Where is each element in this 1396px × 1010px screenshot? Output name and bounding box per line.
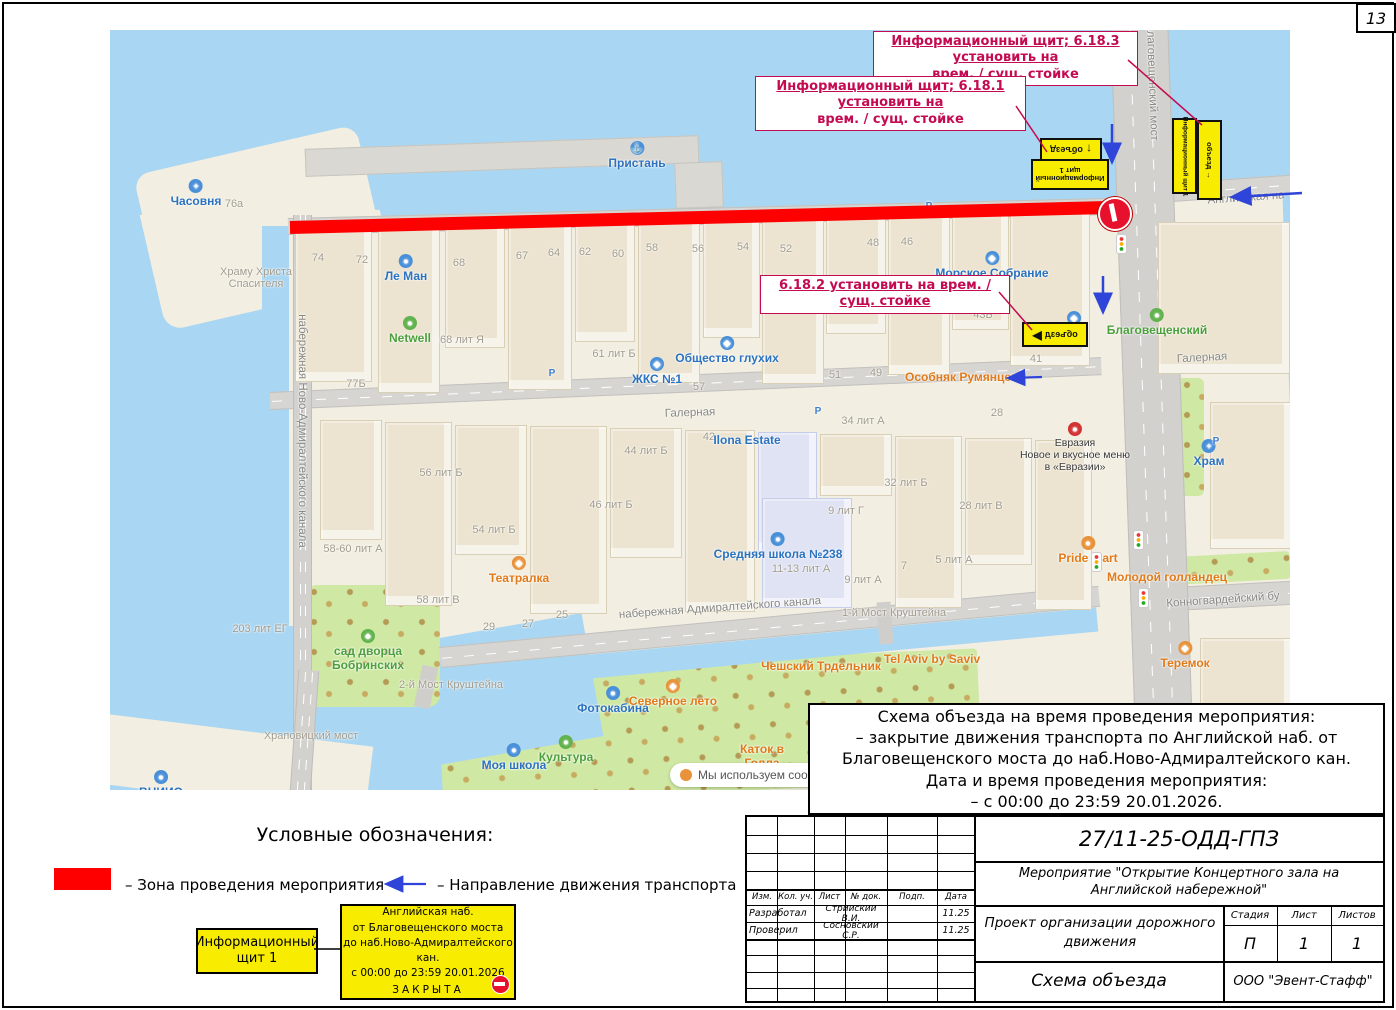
map-label: 48	[867, 237, 879, 249]
map-label: 56	[692, 243, 704, 255]
building	[703, 216, 760, 338]
map-label: 67	[516, 250, 528, 262]
tree-icon: ♣	[361, 629, 375, 643]
chapel-icon: +	[189, 179, 203, 193]
map-label: 34 лит А	[841, 415, 884, 427]
detour-sign-text: объезд	[1050, 145, 1083, 154]
tb-sheets-label: Листов	[1331, 905, 1383, 925]
map-label: Храму ХристаСпасителя	[220, 266, 292, 290]
building	[685, 430, 755, 612]
building	[320, 420, 382, 540]
detour-sign-3: ◀ объезд	[1022, 322, 1088, 347]
poi-icon: ◆	[720, 336, 734, 350]
school-icon: ●	[507, 743, 521, 757]
map-label: 60	[612, 248, 624, 260]
map-label: 72	[356, 254, 368, 266]
tb-sheet-value: 1	[1277, 925, 1331, 961]
arrow-left-icon: ◀	[1033, 329, 1042, 341]
info-board-sign-text: Информационный щит 1	[1033, 167, 1107, 183]
tb-col-ndok: № док.	[845, 889, 887, 905]
map-label: Tel Aviv by Saviv	[884, 652, 980, 666]
poi-icon: ◆	[985, 251, 999, 265]
no-entry-sign	[1098, 197, 1132, 231]
callout-6-18-1: Информационный щит; 6.18.1 установить на…	[755, 76, 1026, 131]
tb-role-2: Проверил	[749, 922, 814, 939]
tb-date-1: 11.25	[937, 905, 975, 922]
callout-6-18-2: 6.18.2 установить на врем. / сущ. стойке	[760, 275, 1010, 314]
map-label: 46 лит Б	[589, 499, 632, 511]
scheme-description: Схема объезда на время проведения меропр…	[808, 703, 1385, 815]
map-label: 32 лит Б	[884, 477, 927, 489]
map-label: 57	[693, 381, 705, 393]
description-lines: Схема объезда на время проведения меропр…	[810, 706, 1383, 812]
info-board-label-line: щит 1	[237, 951, 278, 967]
ad-icon: ●	[1068, 422, 1082, 436]
building	[826, 212, 886, 334]
detour-sign-text: объезд	[1045, 330, 1078, 339]
traffic-light-icon	[1116, 234, 1127, 254]
map-label: 28 лит В	[959, 500, 1002, 512]
traffic-light-icon	[1138, 588, 1149, 608]
info-board-sign-2: Информационный щит 1	[1172, 118, 1197, 194]
camera-icon: ●	[606, 686, 620, 700]
building	[445, 226, 505, 348]
map-label: 46	[901, 236, 913, 248]
map-label: ●Средняя школа №238	[714, 531, 843, 561]
tb-col-podp: Подп.	[887, 889, 937, 905]
map-label: ⚓Пристань	[608, 140, 665, 170]
map-label: ●Моя школа	[482, 742, 547, 772]
map-label: 77Б	[346, 378, 365, 390]
no-entry-icon	[491, 975, 510, 994]
tb-date-2: 11.25	[937, 922, 975, 939]
callout-line: Информационный щит; 6.18.3 установить на	[878, 34, 1133, 67]
map-label: 68	[453, 257, 465, 269]
map-label: ◆Театралка	[489, 555, 549, 585]
tb-col-data: Дата	[937, 889, 975, 905]
poi-icon: ◆	[512, 556, 526, 570]
info-board-content: Английская наб.от Благовещенского мостад…	[340, 904, 516, 1000]
landmark-icon: ●	[1150, 308, 1164, 322]
poi-icon: ◆	[650, 357, 664, 371]
tb-col-list: Лист	[814, 889, 845, 905]
tb-col-izm: Изм.	[747, 889, 777, 905]
map-label: +Храм	[1194, 438, 1225, 468]
tb-company: ООО "Эвент-Стафф"	[1223, 961, 1383, 1001]
building	[895, 436, 962, 608]
map-label: 9 лит Г	[828, 505, 864, 517]
office-icon: ●	[403, 316, 417, 330]
map-label: P	[815, 406, 822, 417]
tb-role-1: Разработал	[749, 905, 814, 922]
detour-sign-text: объезд →	[1205, 142, 1214, 179]
map-label: ●ВНИИО	[139, 769, 183, 790]
cookie-icon	[680, 769, 692, 781]
map-label: ●Культура	[539, 734, 593, 764]
building	[385, 422, 452, 606]
detour-sign-2: объезд →	[1197, 120, 1222, 200]
map-label: 7	[901, 560, 907, 572]
map-label: 9 лит А	[844, 574, 881, 586]
pier-icon: ⚓	[630, 141, 644, 155]
callout-line: врем. / сущ. стойке	[760, 112, 1021, 128]
map-label: 29	[483, 621, 495, 633]
title-block: Изм. Кол. уч. Лист № док. Подп. Дата Раз…	[745, 815, 1385, 1003]
shop-icon: ●	[559, 735, 573, 749]
map-label: 1-й Мост Круштейна	[842, 607, 946, 619]
map-label: 27	[522, 618, 534, 630]
legend-zone-label: – Зона проведения мероприятия	[125, 876, 384, 894]
map-label: Особняк Румянцева	[905, 370, 1025, 384]
map-label: ●ЕвразияНовое и вкусное менюв «Евразии»	[1020, 422, 1130, 473]
tb-doc-number: 27/11-25-ОДД-ГПЗ	[975, 817, 1383, 861]
map-label: 2-й Мост Круштейна	[399, 679, 503, 691]
tb-name-2: Сосновский С.Р.	[815, 922, 887, 939]
map-label: ♣сад дворцаБобринских	[332, 628, 404, 672]
callout-line: 6.18.2 установить на врем. / сущ. стойке	[765, 278, 1005, 311]
info-board-sign-1: Информационный щит 1	[1031, 159, 1109, 190]
map-canvas[interactable]: +Часовня76аХраму ХристаСпасителя⚓Пристан…	[110, 30, 1290, 790]
map-label: 11-13 лит А	[772, 563, 830, 575]
map-label: ◆Теремок	[1160, 640, 1209, 670]
detour-sign-1: ↑ объезд	[1040, 138, 1102, 161]
map-label: 5 лит А	[935, 554, 972, 566]
tb-sheet-label: Лист	[1277, 905, 1331, 925]
map-label: 64	[548, 247, 560, 259]
building	[1210, 402, 1290, 549]
map-label: 58	[646, 242, 658, 254]
tb-stage-value: П	[1223, 925, 1277, 961]
callout-line: Информационный щит; 6.18.1 установить на	[760, 79, 1021, 112]
map-label: P	[1213, 436, 1220, 447]
map-label: 25	[556, 609, 568, 621]
map-label: P	[549, 368, 556, 379]
map-label: Ilona Estate	[713, 433, 780, 447]
info-board-sign-text: Информационный щит 1	[1181, 116, 1188, 196]
map-label: 58 лит В	[416, 594, 459, 606]
info-board-closed: ЗАКРЫТА	[342, 983, 514, 998]
tb-org-block: Проект организации дорожного движения	[981, 905, 1219, 961]
map-label: 74	[312, 252, 324, 264]
map-label: ●Ле Ман	[385, 253, 428, 283]
map-label: ◆Общество глухих	[675, 335, 779, 365]
info-board-label: Информационный щит 1	[196, 928, 318, 974]
map-label: 62	[579, 246, 591, 258]
info-board-lines: Английская наб.от Благовещенского мостад…	[342, 905, 514, 981]
map-label: 54	[737, 241, 749, 253]
arrow-down-icon: ↑	[1086, 144, 1092, 156]
map-label: 68 лит Я	[440, 334, 484, 346]
pier-arm	[674, 161, 724, 209]
tb-col-koluch: Кол. уч.	[777, 889, 814, 905]
map-label: 203 лит ЕГ	[232, 623, 287, 635]
info-board-label-line: Информационный	[195, 935, 319, 951]
map-label: 58-60 лит А	[323, 543, 382, 555]
tb-name-1: Стрийский В.И.	[815, 905, 887, 922]
map-label: ●Pride mart	[1058, 535, 1117, 565]
shop-icon: ●	[1081, 536, 1095, 550]
map-label: Галерная	[665, 406, 716, 420]
map-label: 76а	[225, 198, 243, 210]
building	[508, 222, 572, 390]
food-icon: ◆	[1178, 641, 1192, 655]
tb-project-name: Мероприятие "Открытие Концертного зала н…	[981, 861, 1377, 905]
map-label: 52	[780, 243, 792, 255]
map-label: 61 лит Б	[592, 348, 635, 360]
map-label: 44 лит Б	[624, 445, 667, 457]
map-label: Молодой голландец	[1107, 570, 1227, 584]
map-label: ◆Северное лето	[629, 678, 717, 708]
building	[820, 434, 892, 496]
tb-sheets-value: 1	[1331, 925, 1383, 961]
map-label: 54 лит Б	[472, 524, 515, 536]
building	[575, 220, 635, 342]
map-label: Храповицкий мост	[264, 730, 358, 742]
map-label: 49	[870, 367, 882, 379]
map-label: набережная Ново-Адмиралтейского канала	[296, 314, 308, 548]
tb-scheme-title: Схема объезда	[975, 961, 1223, 1001]
legend-zone-swatch	[54, 868, 111, 890]
map-label: +Часовня	[171, 178, 222, 208]
map-label: 41	[1030, 353, 1042, 365]
legend-title: Условные обозначения:	[210, 824, 540, 846]
traffic-light-icon	[1133, 530, 1144, 550]
tb-stage-label: Стадия	[1223, 905, 1277, 925]
map-label: 28	[991, 407, 1003, 419]
poi-icon: ◆	[666, 679, 680, 693]
traffic-light-icon	[1091, 552, 1102, 572]
institute-icon: ●	[154, 770, 168, 784]
page-number: 13	[1356, 3, 1396, 33]
map-label: ●Netwell	[389, 315, 431, 345]
printer-icon: ●	[399, 254, 413, 268]
map-label: 56 лит Б	[419, 467, 462, 479]
school-icon: ●	[771, 532, 785, 546]
map-label: 51	[829, 369, 841, 381]
building	[530, 426, 607, 614]
legend-direction-label: – Направление движения транспорта	[437, 876, 736, 894]
map-label: Чешский Трдельник	[761, 659, 881, 673]
map-label: ●Благовещенский	[1107, 307, 1207, 337]
